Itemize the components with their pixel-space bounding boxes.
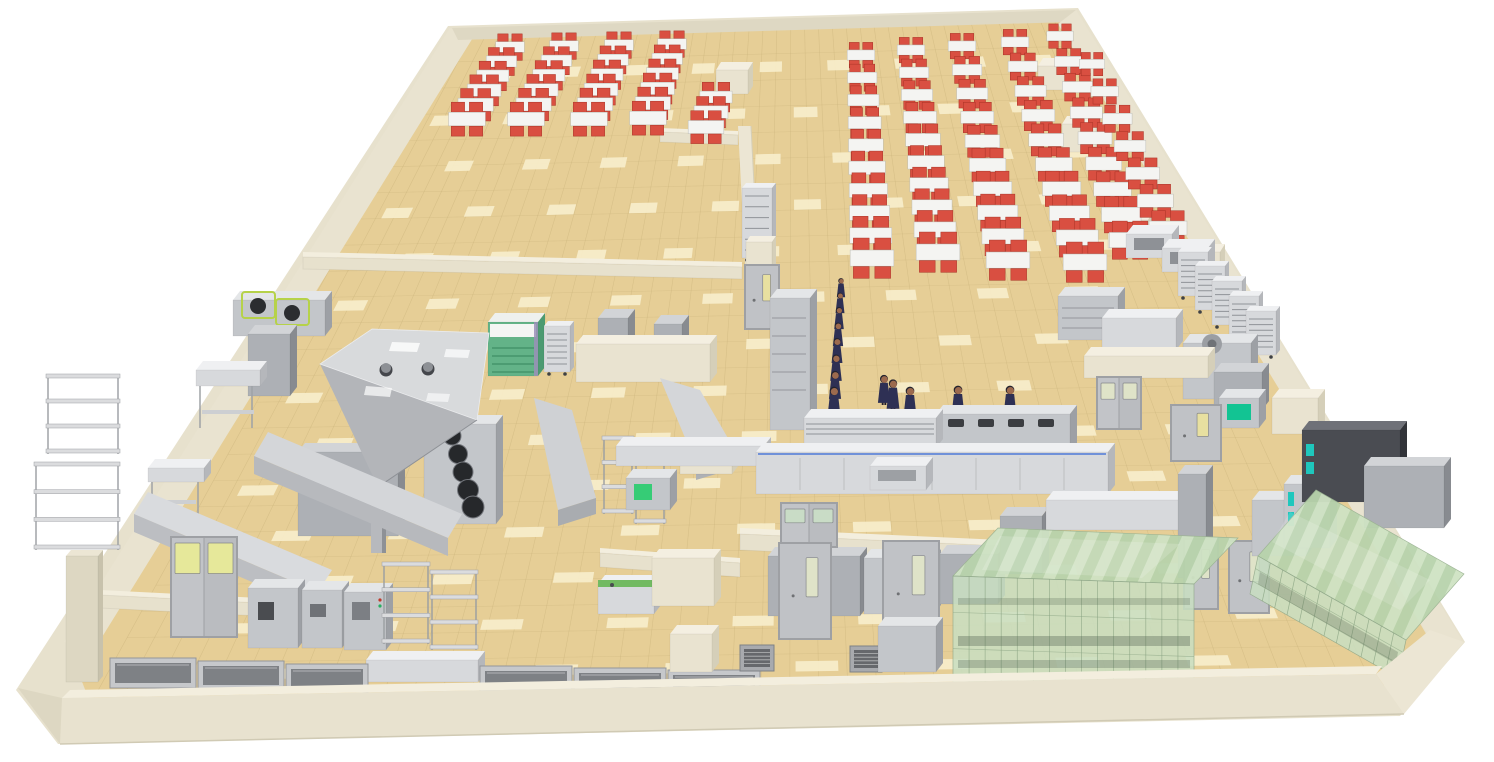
prep-room-door: [1096, 376, 1142, 430]
steel-box: [878, 617, 943, 672]
cream-box: [670, 625, 719, 672]
floor-slab-light: [366, 651, 485, 682]
drain-trough: [198, 661, 284, 690]
dish-counter: [1102, 309, 1183, 350]
kitchen-door: [778, 542, 832, 640]
floor-grate: [850, 646, 882, 672]
counter-above-coolroom: [1046, 491, 1195, 530]
green-sink-station: [598, 575, 661, 614]
drain-trough: [110, 658, 196, 688]
facility-render-canvas: [0, 0, 1494, 762]
room-wall-segment: [1084, 347, 1215, 378]
serving-line-panel: [770, 289, 817, 430]
tray-trolley: [544, 321, 574, 376]
cold-room-double-door: [170, 536, 238, 638]
corner-wall: [66, 550, 103, 682]
slicer-machine: [626, 469, 677, 510]
prep-room-door: [1170, 404, 1222, 462]
green-screen-machine: [1219, 389, 1266, 428]
floor-grate: [740, 645, 774, 671]
pass-counter: [756, 443, 1115, 494]
sink-table: [870, 457, 933, 490]
cream-counter: [576, 335, 717, 382]
ice-machine: [488, 313, 545, 376]
steel-cabinet: [1364, 457, 1451, 528]
tray-slide-counter: [804, 409, 943, 448]
cream-block: [652, 549, 721, 606]
processing-machine: [302, 581, 349, 648]
facility-3d-render: [0, 0, 1494, 762]
steel-counter: [616, 437, 771, 466]
kitchen-door: [780, 502, 838, 548]
processing-machine: [248, 579, 305, 648]
